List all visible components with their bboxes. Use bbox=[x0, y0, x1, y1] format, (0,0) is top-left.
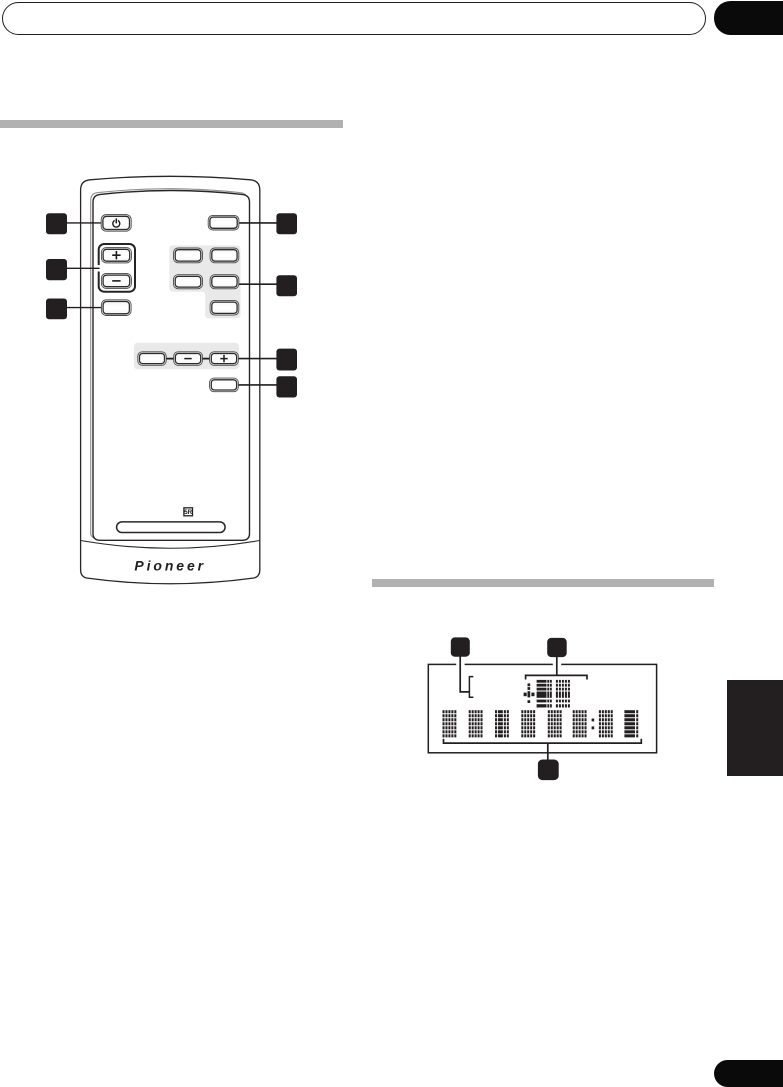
svg-text:Pioneer: Pioneer bbox=[134, 557, 206, 573]
svg-text:5R: 5R bbox=[184, 509, 192, 516]
